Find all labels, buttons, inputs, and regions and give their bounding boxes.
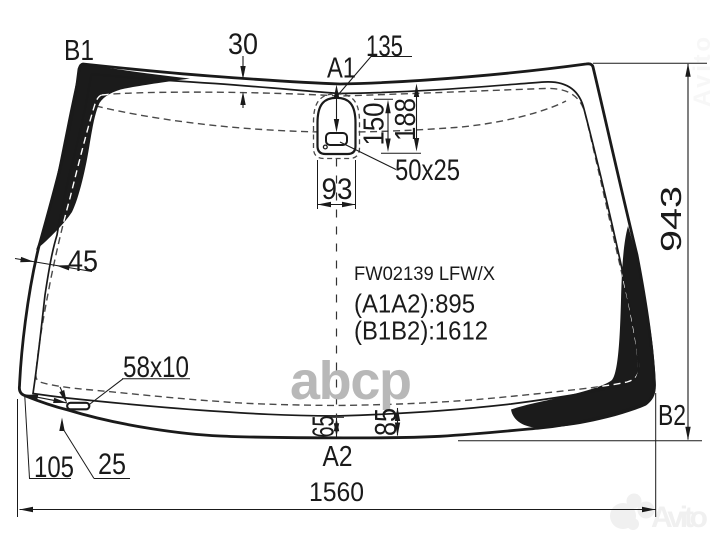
svg-text:50x25: 50x25	[395, 154, 460, 187]
svg-text:188: 188	[390, 98, 422, 141]
svg-text:A1: A1	[327, 53, 356, 85]
svg-text:85: 85	[368, 408, 403, 436]
svg-text:150: 150	[359, 103, 391, 146]
svg-text:58x10: 58x10	[123, 351, 189, 384]
svg-text:135: 135	[366, 30, 403, 63]
svg-text:1560: 1560	[309, 477, 364, 507]
svg-text:105: 105	[34, 451, 74, 484]
svg-text:45: 45	[68, 245, 98, 278]
svg-text:(A1A2):895: (A1A2):895	[354, 289, 475, 319]
svg-text:FW02139 LFW/X: FW02139 LFW/X	[354, 264, 495, 285]
svg-text:25: 25	[98, 448, 126, 481]
svg-text:abcp: abcp	[290, 351, 412, 411]
svg-text:Avito: Avito	[689, 37, 716, 107]
svg-text:65: 65	[306, 416, 341, 438]
svg-text:943: 943	[656, 186, 688, 252]
svg-text:B2: B2	[658, 400, 686, 432]
svg-text:(B1B2):1612: (B1B2):1612	[354, 316, 488, 346]
svg-text:Avito: Avito	[651, 501, 708, 534]
svg-text:B1: B1	[64, 35, 94, 67]
svg-text:93: 93	[322, 173, 353, 206]
svg-text:A2: A2	[323, 441, 353, 473]
